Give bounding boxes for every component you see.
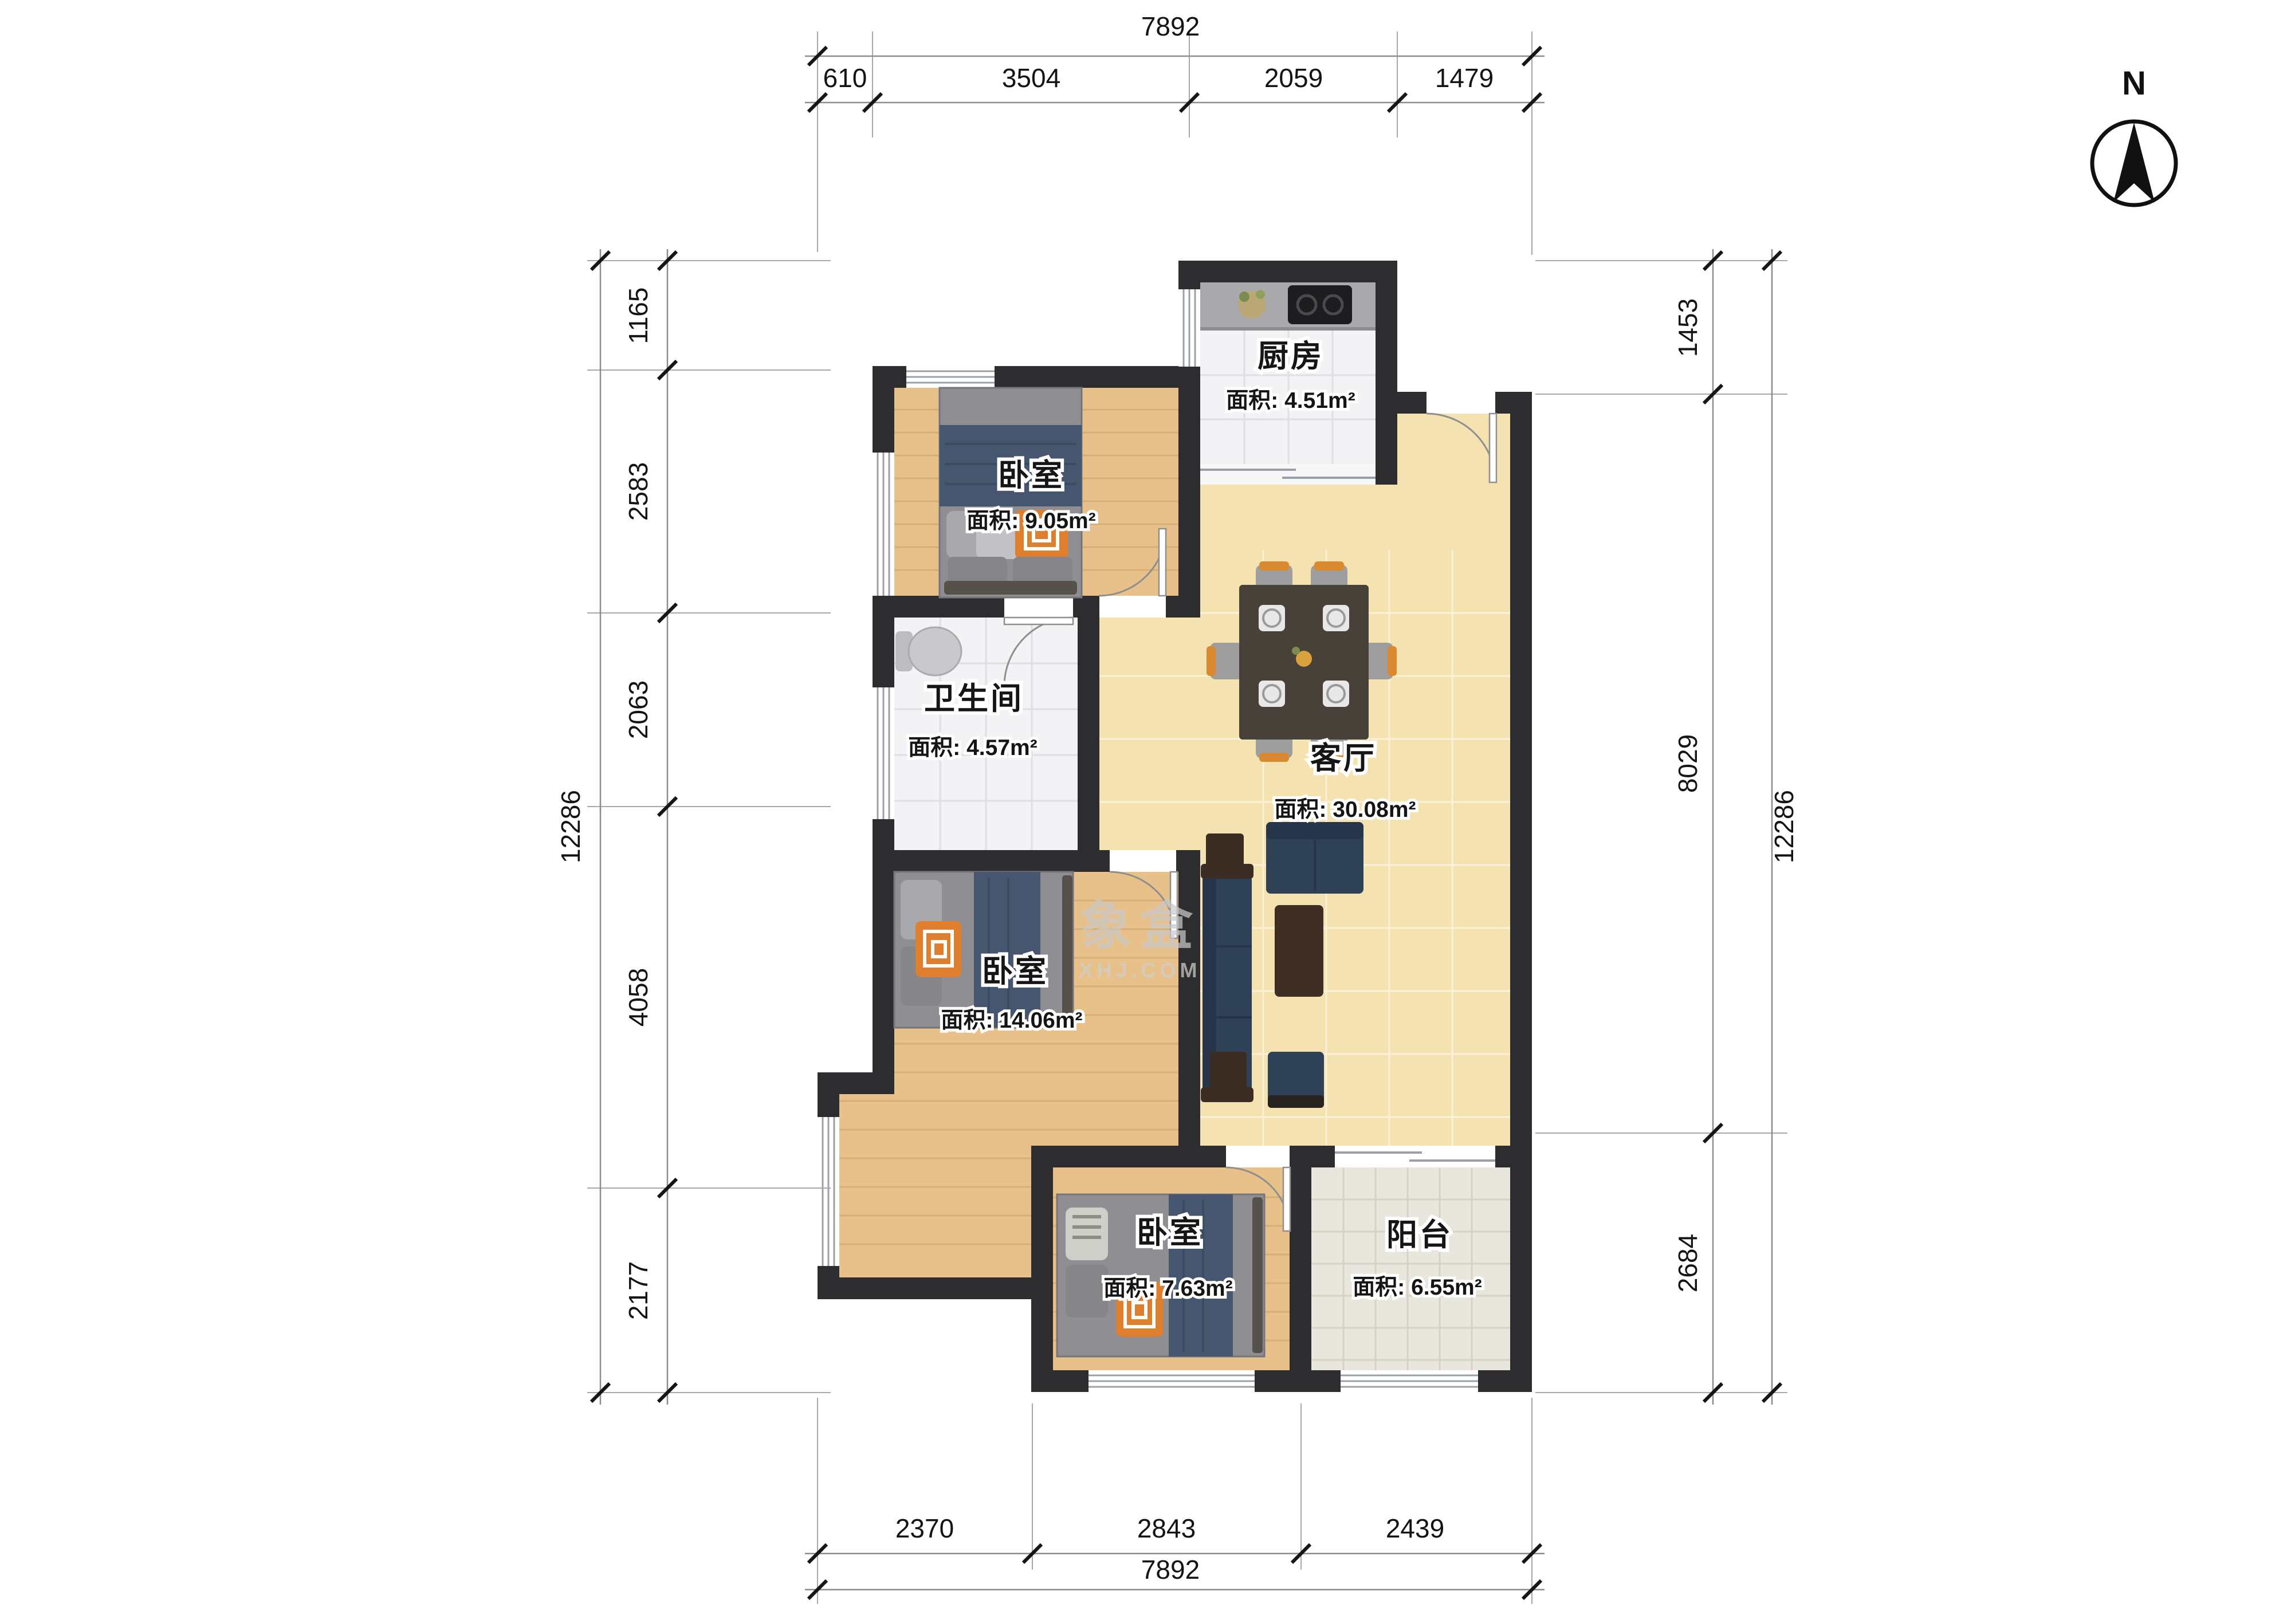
dim-left-segment-0: 1165 — [623, 288, 653, 344]
room-label-bedroom-top: 卧室 — [998, 458, 1064, 493]
bed-top-icon — [940, 388, 1082, 597]
floor-plan-page: 厨房 面积: 4.51m² 卧室 面积: 9.05m² 卫生间 面积: 4.57… — [0, 0, 2291, 1624]
hallway-floor — [1099, 618, 1200, 850]
room-area-bedroom-top: 面积: 9.05m² — [966, 509, 1095, 533]
dim-left-segment-2: 2063 — [623, 681, 653, 739]
dim-left-segment-4: 2177 — [623, 1261, 653, 1320]
room-area-living-room: 面积: 30.08m² — [1274, 797, 1416, 822]
room-area-bedroom-middle: 面积: 14.06m² — [941, 1008, 1082, 1033]
watermark: 象盒 XHJ.COM — [1079, 897, 1201, 982]
dimensions-right: 1453 8029 2684 12286 — [1535, 249, 1799, 1405]
watermark-logo: 象盒 — [1079, 897, 1201, 955]
dim-right-segment-1: 8029 — [1673, 734, 1703, 793]
compass-north-label: N — [2122, 65, 2146, 102]
dim-top-segment-2: 2059 — [1264, 63, 1323, 93]
dimensions-bottom: 2370 2843 2439 7892 — [805, 1398, 1545, 1604]
window-kitchen-west — [1178, 289, 1200, 367]
room-area-kitchen: 面积: 4.51m² — [1226, 388, 1355, 413]
toilet-icon — [895, 627, 961, 675]
room-area-bathroom: 面积: 4.57m² — [908, 736, 1037, 760]
room-area-bedroom-bottom: 面积: 7.63m² — [1103, 1276, 1232, 1301]
dim-bottom-segment-2: 2439 — [1386, 1513, 1444, 1543]
dim-bottom-segment-0: 2370 — [895, 1513, 954, 1543]
dimensions-top: 7892 610 3504 2059 1479 — [805, 11, 1545, 255]
dim-left-total: 12286 — [556, 790, 585, 863]
window-bedroom-middle-west — [818, 1117, 839, 1266]
room-label-bathroom: 卫生间 — [924, 682, 1024, 716]
dim-top-segment-0: 610 — [823, 63, 867, 93]
dim-left-segment-3: 4058 — [623, 968, 653, 1027]
dim-top-segment-1: 3504 — [1002, 63, 1060, 93]
dim-top-total: 7892 — [1141, 11, 1200, 41]
dim-right-total: 12286 — [1769, 790, 1799, 863]
room-label-balcony: 阳台 — [1386, 1218, 1453, 1252]
balcony-floor — [1311, 1167, 1510, 1370]
room-label-bedroom-middle: 卧室 — [982, 954, 1048, 989]
dim-right-segment-2: 2684 — [1673, 1234, 1703, 1292]
watermark-url: XHJ.COM — [1079, 958, 1201, 982]
window-bedroom-bottom-south — [1088, 1370, 1255, 1392]
window-bedroom-top-west — [873, 453, 894, 596]
room-area-balcony: 面积: 6.55m² — [1353, 1275, 1482, 1300]
kitchen-counter-icon — [1200, 282, 1376, 331]
sliding-door-balcony — [1335, 1146, 1495, 1167]
window-bathroom-west — [873, 687, 894, 819]
room-label-living-room: 客厅 — [1310, 741, 1377, 776]
dim-bottom-total: 7892 — [1141, 1555, 1200, 1584]
dim-right-segment-0: 1453 — [1673, 298, 1703, 357]
compass: N — [2092, 65, 2176, 205]
sliding-door-kitchen — [1200, 464, 1376, 485]
dim-top-segment-3: 1479 — [1435, 63, 1494, 93]
dimensions-left: 12286 1165 2583 2063 4058 2177 — [556, 249, 831, 1405]
floor-plan-canvas: 厨房 面积: 4.51m² 卧室 面积: 9.05m² 卫生间 面积: 4.57… — [0, 0, 2291, 1624]
window-balcony-south — [1341, 1370, 1478, 1392]
room-label-bedroom-bottom: 卧室 — [1137, 1216, 1203, 1250]
bed-middle-icon — [894, 872, 1073, 1028]
window-bedroom-top-north — [906, 366, 995, 388]
room-label-kitchen: 厨房 — [1258, 339, 1324, 373]
dim-left-segment-1: 2583 — [623, 462, 653, 521]
dim-bottom-segment-1: 2843 — [1137, 1513, 1196, 1543]
